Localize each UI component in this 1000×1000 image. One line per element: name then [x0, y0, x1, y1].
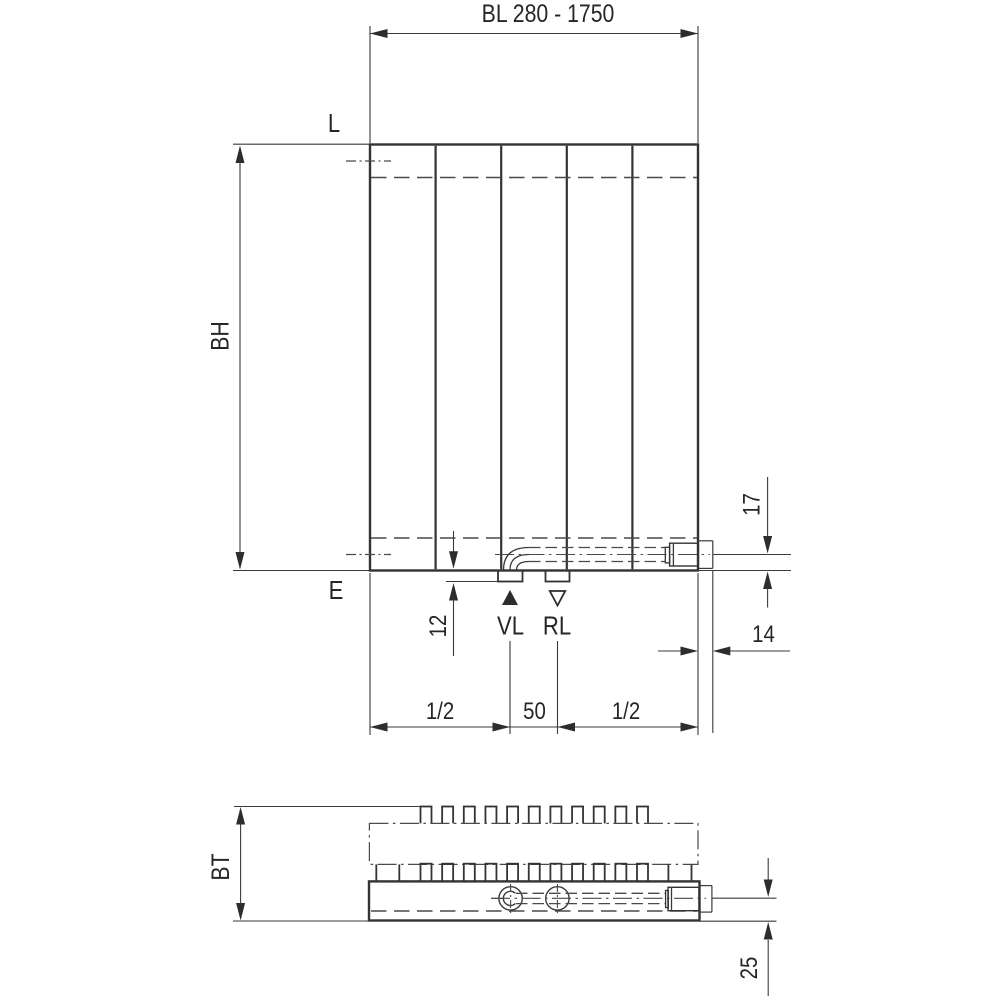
svg-text:12: 12	[424, 615, 451, 638]
svg-text:25: 25	[735, 957, 762, 980]
svg-text:BT: BT	[206, 853, 234, 880]
svg-text:50: 50	[523, 697, 546, 724]
svg-text:VL: VL	[497, 612, 524, 641]
svg-text:14: 14	[752, 620, 775, 647]
svg-text:17: 17	[738, 493, 765, 516]
svg-text:BH: BH	[206, 321, 234, 351]
svg-text:1/2: 1/2	[426, 697, 454, 724]
svg-text:1/2: 1/2	[612, 697, 640, 724]
svg-text:E: E	[329, 576, 344, 605]
svg-text:BL 280 - 1750: BL 280 - 1750	[482, 0, 615, 27]
svg-text:L: L	[328, 109, 340, 138]
svg-text:RL: RL	[543, 612, 571, 641]
